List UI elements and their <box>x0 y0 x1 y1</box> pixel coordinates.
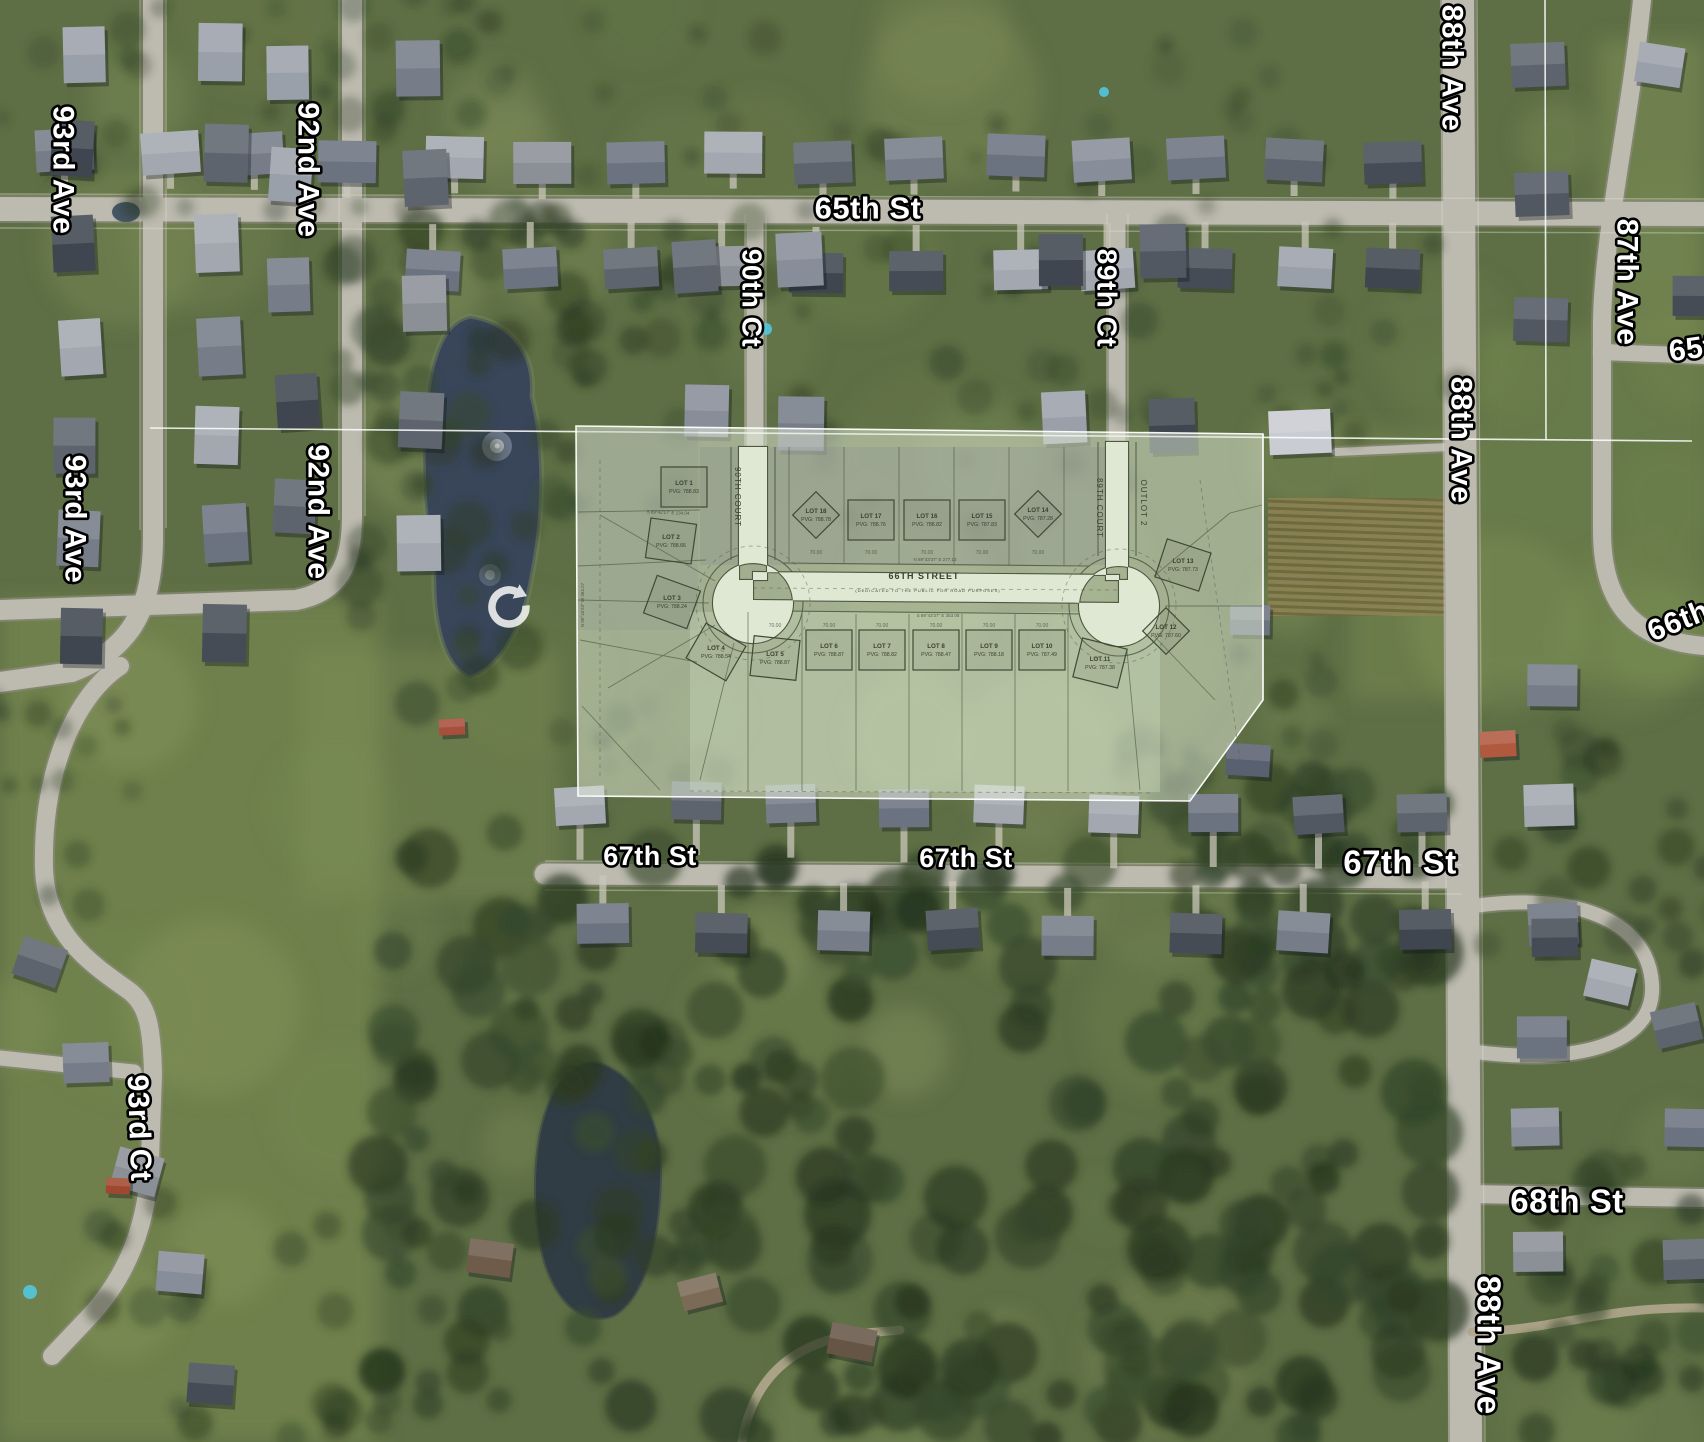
street-label: 88th Ave <box>1471 1275 1508 1414</box>
street-label: 93rd Ct <box>121 1074 158 1182</box>
street-label: 90th Ct <box>737 249 768 347</box>
street-labels-layer: 93rd Ave92nd Ave65th St90th Ct89th Ct88t… <box>0 0 1704 1442</box>
street-label: 92nd Ave <box>302 444 335 579</box>
street-label: 88th Ave <box>1445 377 1478 504</box>
street-label: 67th St <box>603 841 697 871</box>
street-label: 87th Ave <box>1611 219 1644 346</box>
street-label: 93rd Ave <box>59 455 92 584</box>
street-label: 66th St <box>1643 579 1704 648</box>
street-label: 93rd Ave <box>47 106 80 235</box>
map-viewport[interactable]: LOT 1PVG: 788.83LOT 2PVG: 788.66LOT 3PVG… <box>0 0 1704 1442</box>
rotate-icon[interactable] <box>492 584 527 624</box>
street-label: 65th St <box>1667 321 1704 368</box>
street-label: 88th Ave <box>1436 5 1469 132</box>
street-label: 67th St <box>1343 844 1457 881</box>
street-label: 92nd Ave <box>292 102 325 237</box>
street-label: 65th St <box>815 191 922 226</box>
street-label: 67th St <box>919 843 1013 873</box>
street-label: 68th St <box>1510 1183 1624 1220</box>
street-label: 89th Ct <box>1092 249 1123 347</box>
